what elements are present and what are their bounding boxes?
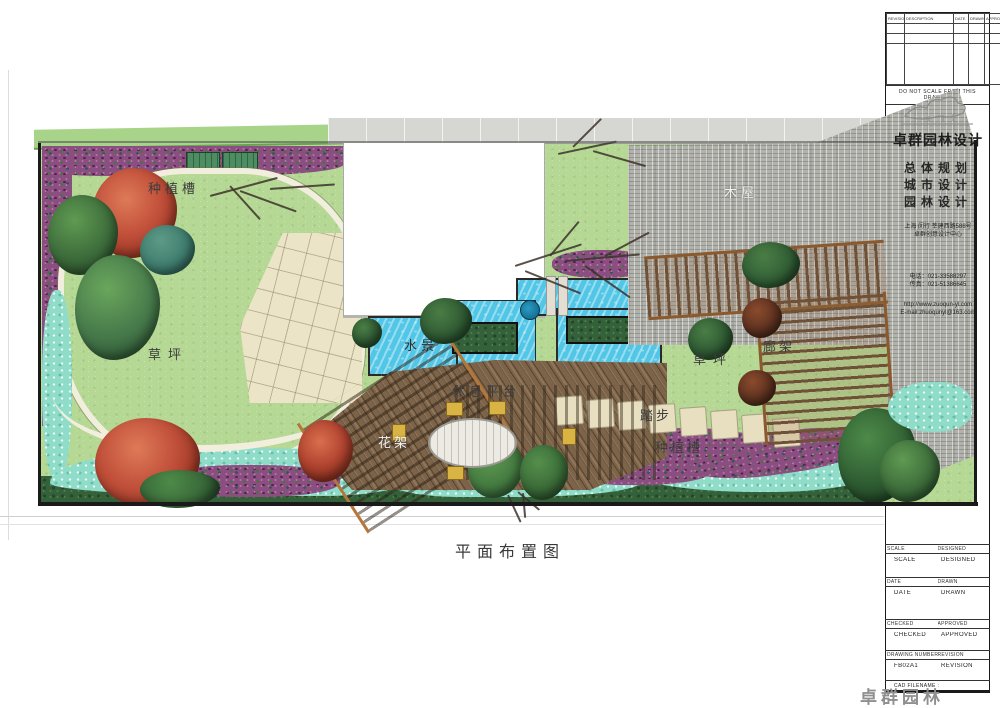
field-section-drawing-number: DRAWING NUMBERREVISION FB02A1REVISION xyxy=(885,650,990,680)
label-lawn-left: 草坪 xyxy=(148,344,188,363)
revision-table-empty-row xyxy=(887,34,1000,44)
pebble-swirl-right xyxy=(888,382,972,432)
drawing-number-label: DRAWING NUMBER xyxy=(887,652,938,658)
designed-value: DESIGNED xyxy=(941,557,988,563)
sheet-margin-line-2 xyxy=(0,524,884,525)
field-section-date: DATEDRAWN DATEDRAWN xyxy=(885,577,990,619)
branches-over-pool xyxy=(495,235,665,305)
service-line-3: 园林设计 xyxy=(888,194,988,211)
outdoor-table xyxy=(428,418,517,468)
plan-title: 平面布置图 xyxy=(455,538,565,562)
label-wood-house: 木屋 xyxy=(724,182,758,201)
revision-value: REVISION xyxy=(941,663,988,669)
label-lawn-right: 草坪 xyxy=(693,349,733,368)
field-section-scale: SCALEDESIGNED SCALEDESIGNED xyxy=(885,544,990,577)
branches-top-center xyxy=(548,128,688,183)
email-line: E-mail:zhuoqunyl@163.com xyxy=(888,309,988,317)
chair xyxy=(447,466,464,480)
branches-top-left xyxy=(200,160,350,230)
stepping-stone xyxy=(710,409,739,440)
scale-label: SCALE xyxy=(887,546,938,552)
date-value: DATE xyxy=(894,590,941,596)
revision-table: REVISION DESCRIPTION DATE DRAWN APPROVED xyxy=(886,13,1000,85)
approved-label: APPROVED xyxy=(938,621,989,627)
label-water-feature: 水景 xyxy=(404,335,438,354)
label-corridor-pergola: 廊架 xyxy=(763,336,795,355)
chair xyxy=(562,428,576,445)
chair xyxy=(489,401,506,415)
scale-value: SCALE xyxy=(894,557,941,563)
fax-line: 传真：021-51386645 xyxy=(888,281,988,289)
website-line: http://www.zuoqun-yl.com xyxy=(888,301,988,309)
approved-header: APPROVED xyxy=(985,14,1000,24)
approved-value: APPROVED xyxy=(941,632,988,638)
label-flower-trellis: 花架 xyxy=(378,432,410,451)
stepping-stone xyxy=(679,406,708,437)
date-label: DATE xyxy=(887,579,938,585)
company-watermark: 卓群园林 xyxy=(860,683,944,708)
company-name: 卓群园林设计 xyxy=(888,130,988,150)
description-header: DESCRIPTION xyxy=(905,14,954,24)
service-line-2: 城市设计 xyxy=(888,177,988,194)
label-planting-trough-right: 种植槽 xyxy=(655,437,703,456)
drawn-label: DRAWN xyxy=(938,579,989,585)
plan-border-bottom xyxy=(38,502,978,506)
service-line-1: 总体规划 xyxy=(888,160,988,177)
drawn-value: DRAWN xyxy=(941,590,988,596)
plan-border-top xyxy=(38,141,975,143)
sheet-margin-line-1 xyxy=(0,516,884,517)
date-header: DATE xyxy=(954,14,969,24)
drawing-number-value: FB02A1 xyxy=(894,663,941,669)
plan-border-left xyxy=(38,143,41,505)
checked-value: CHECKED xyxy=(894,632,941,638)
revision-table-empty-row xyxy=(887,44,1000,85)
drawing-sheet: { "page": { "plan_title": "平面布置图", "wate… xyxy=(0,0,1000,706)
revision-table-empty-row xyxy=(887,24,1000,34)
sheet-margin-line-vertical xyxy=(8,70,9,540)
address-line-1: 上海 闵行 莘建西路588号 xyxy=(888,223,988,231)
label-stepping-stones: 踏步 xyxy=(640,405,672,424)
checked-label: CHECKED xyxy=(887,621,938,627)
field-section-checked: CHECKEDAPPROVED CHECKEDAPPROVED xyxy=(885,619,990,650)
chair xyxy=(446,402,463,416)
drawn-header: DRAWN xyxy=(969,14,985,24)
label-planting-trough-left: 种植槽 xyxy=(148,178,199,197)
revision-header: REVISION xyxy=(887,14,905,24)
brand-block: 卓群园林设计 总体规划 城市设计 园林设计 上海 闵行 莘建西路588号 卓群创… xyxy=(888,86,988,317)
designed-label: DESIGNED xyxy=(938,546,989,552)
revision-label: REVISION xyxy=(938,652,989,658)
address-line-2: 卓群创意设计中心 xyxy=(888,231,988,239)
revision-table-header-row: REVISION DESCRIPTION DATE DRAWN APPROVED xyxy=(887,14,1000,24)
company-logo-sketch xyxy=(899,86,977,128)
label-rest-platform: 休息平台 xyxy=(452,381,520,400)
phone-line: 电话：021-33588297 xyxy=(888,273,988,281)
